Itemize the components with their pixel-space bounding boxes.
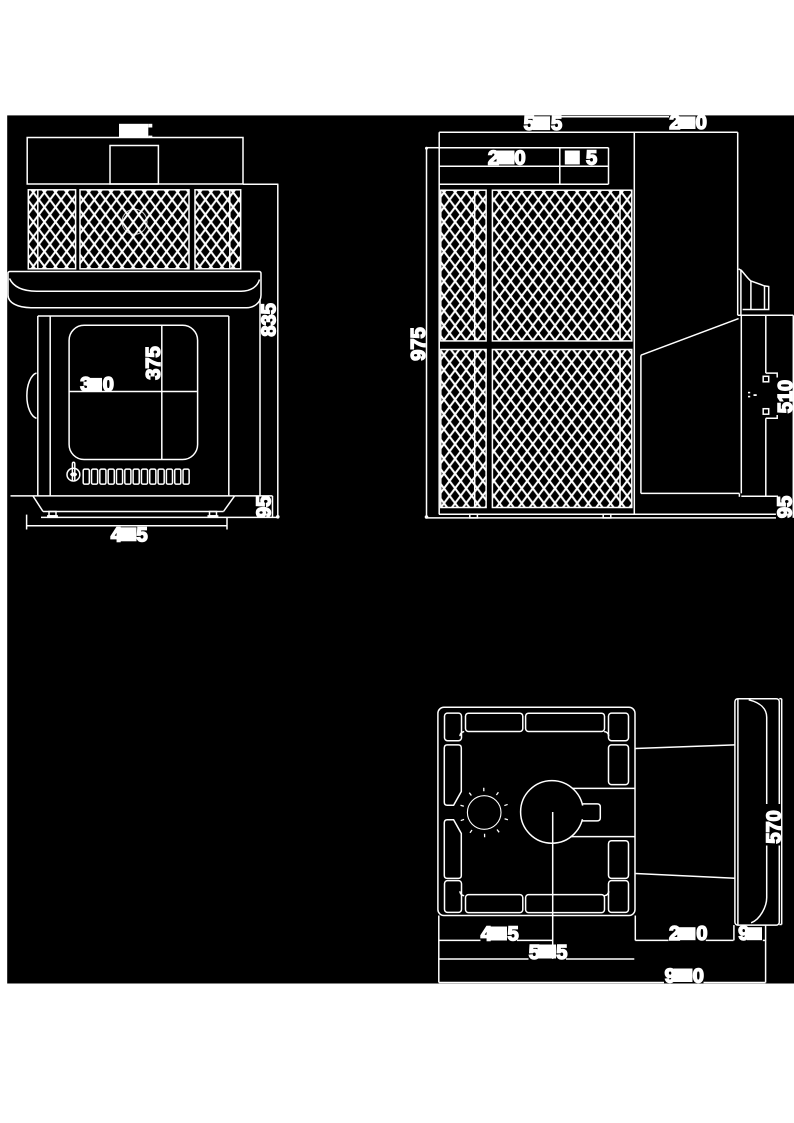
svg-text:0: 0 [103, 374, 114, 396]
svg-text:975: 975 [408, 327, 430, 360]
svg-text:0: 0 [696, 923, 707, 945]
svg-text:375: 375 [143, 346, 165, 379]
svg-text:835: 835 [259, 303, 281, 336]
svg-text:0: 0 [515, 148, 526, 170]
svg-text:510: 510 [775, 380, 794, 413]
svg-text:0: 0 [696, 112, 707, 134]
svg-text:0: 0 [693, 965, 704, 987]
svg-text:95: 95 [775, 496, 794, 518]
svg-text:5: 5 [586, 148, 597, 170]
svg-text:5: 5 [508, 924, 519, 946]
svg-text:5: 5 [556, 942, 567, 964]
svg-text:5: 5 [137, 525, 148, 547]
svg-text:95: 95 [253, 496, 275, 518]
svg-text:570: 570 [763, 810, 785, 843]
